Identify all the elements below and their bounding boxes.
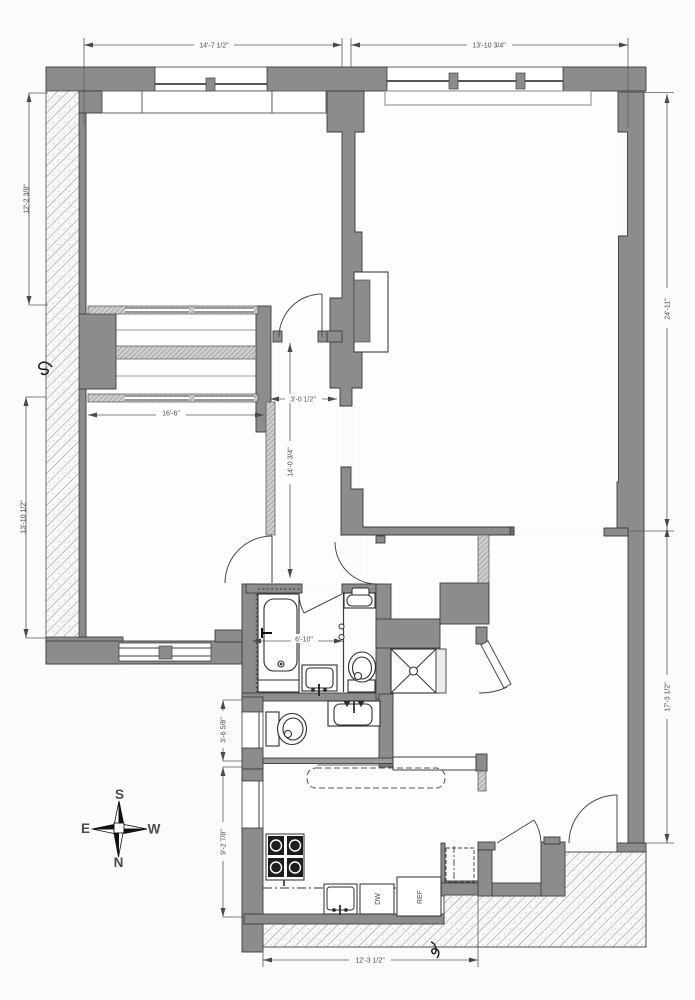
svg-text:DW: DW [375, 893, 382, 905]
svg-text:N: N [114, 855, 124, 870]
svg-text:12'-3 1/2": 12'-3 1/2" [355, 958, 385, 965]
svg-text:REF: REF [417, 890, 424, 904]
svg-text:W: W [148, 822, 161, 837]
svg-text:14'-7 1/2": 14'-7 1/2" [199, 43, 229, 50]
svg-text:E: E [81, 821, 90, 836]
svg-text:3'-0 1/2": 3'-0 1/2" [290, 397, 316, 404]
svg-text:9'-2 7/8": 9'-2 7/8" [221, 829, 228, 855]
svg-text:13'-10 3/4": 13'-10 3/4" [472, 43, 506, 50]
svg-text:24'-11": 24'-11" [665, 298, 672, 320]
svg-text:13'-10 1/2": 13'-10 1/2" [21, 500, 28, 534]
svg-text:17'-3 1/2": 17'-3 1/2" [665, 682, 672, 712]
svg-text:6'-10": 6'-10" [295, 637, 313, 644]
svg-text:3'-6 5/8": 3'-6 5/8" [221, 717, 228, 743]
svg-text:S: S [115, 787, 124, 802]
svg-text:14'-0 3/4": 14'-0 3/4" [288, 447, 295, 477]
svg-text:16'-6": 16'-6" [162, 411, 180, 418]
svg-text:12'-2 3/8": 12'-2 3/8" [24, 184, 31, 214]
